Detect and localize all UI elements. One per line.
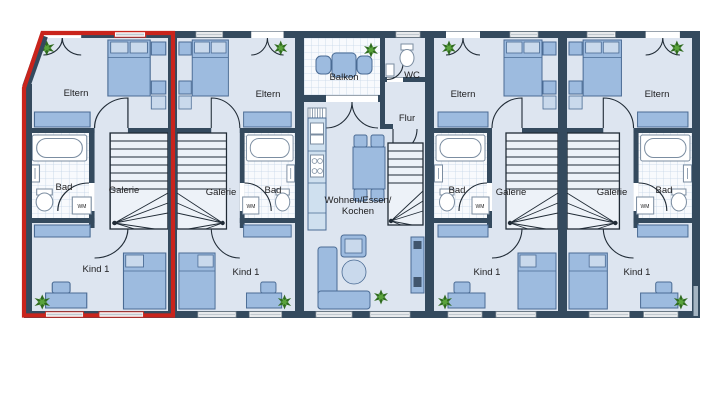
room-label-bath-5: Bad	[656, 185, 673, 196]
room-label-parents-5: Eltern	[645, 89, 670, 100]
room-label-parents-2: Eltern	[256, 89, 281, 100]
washer-label-4: WM	[476, 204, 485, 210]
watermark	[694, 286, 699, 316]
room-label-bath-4: Bad	[449, 185, 466, 196]
room-label-gallery-4: Galerie	[496, 187, 527, 198]
washer-label-2: WM	[247, 204, 256, 210]
room-label-balcony: Balkon	[329, 72, 358, 83]
room-label-gallery-1: Galerie	[109, 185, 140, 196]
room-label-parents-4: Eltern	[451, 89, 476, 100]
room-label-child-4: Kind 1	[474, 267, 501, 278]
room-label-bath-1: Bad	[56, 182, 73, 193]
room-label-child-1: Kind 1	[83, 264, 110, 275]
room-label-gallery-2: Galerie	[206, 187, 237, 198]
floor-plan-canvas: Eltern Bad Galerie Kind 1 WM Eltern Bad …	[0, 0, 720, 405]
room-label-gallery-5: Galerie	[597, 187, 628, 198]
room-label-bath-2: Bad	[265, 185, 282, 196]
room-label-parents-1: Eltern	[64, 88, 89, 99]
washer-label-5: WM	[641, 204, 650, 210]
room-label-living-line1: Wohnen/Essen/	[325, 195, 392, 206]
room-label-child-2: Kind 1	[233, 267, 260, 278]
room-label-hall: Flur	[399, 113, 415, 124]
floor-plan: Eltern Bad Galerie Kind 1 WM Eltern Bad …	[0, 0, 720, 405]
room-label-wc: WC	[404, 70, 420, 81]
room-label-living-line2: Kochen	[342, 206, 374, 217]
room-label-child-5: Kind 1	[624, 267, 651, 278]
washer-label-1: WM	[78, 204, 87, 210]
